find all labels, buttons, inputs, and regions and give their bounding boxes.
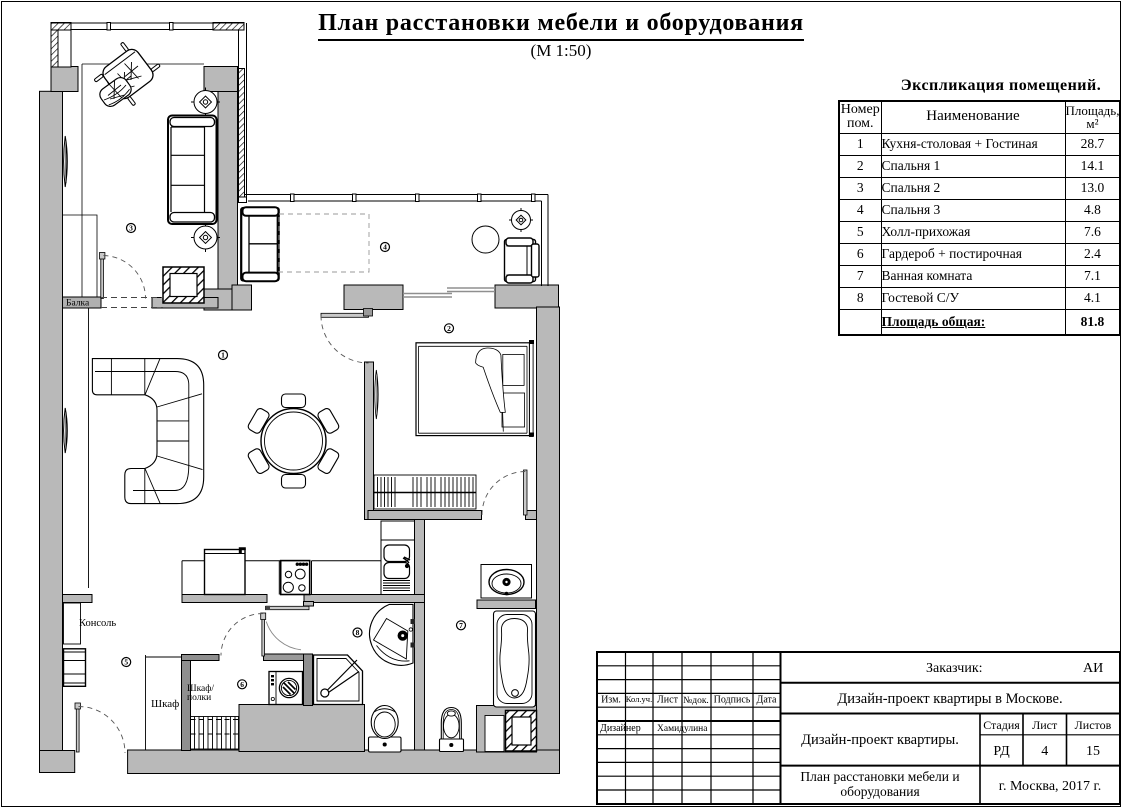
svg-text:Балка: Балка xyxy=(66,299,90,309)
svg-text:6: 6 xyxy=(240,680,244,689)
svg-text:3: 3 xyxy=(129,224,133,233)
svg-text:7: 7 xyxy=(459,621,463,630)
svg-text:Консоль: Консоль xyxy=(79,618,116,629)
svg-text:2: 2 xyxy=(447,324,451,333)
svg-text:Шкаф: Шкаф xyxy=(151,698,179,710)
svg-text:4: 4 xyxy=(383,243,387,252)
svg-text:полки: полки xyxy=(187,693,211,703)
svg-text:8: 8 xyxy=(356,628,360,637)
svg-text:5: 5 xyxy=(124,658,128,667)
svg-text:1: 1 xyxy=(221,351,225,360)
